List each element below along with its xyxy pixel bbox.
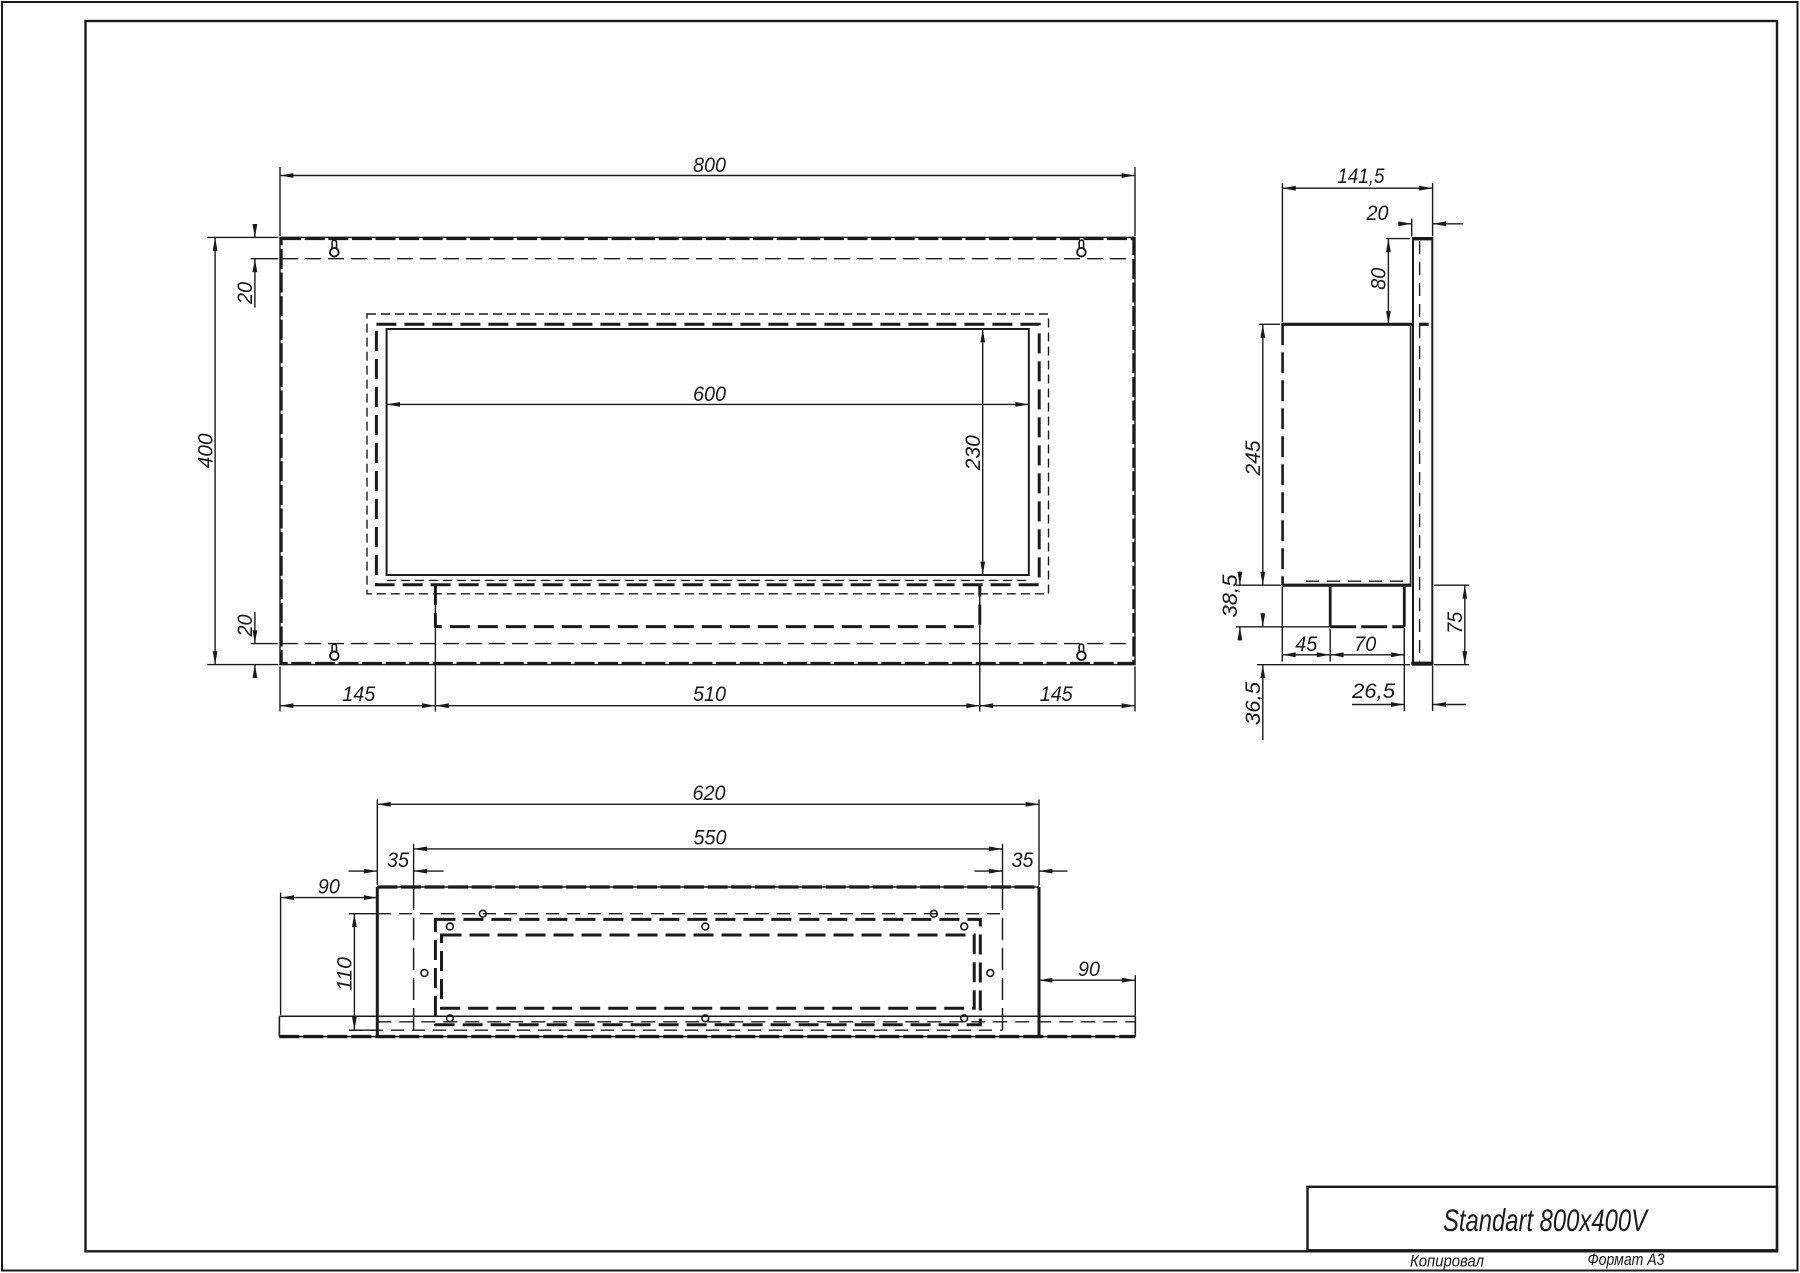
svg-text:110: 110	[333, 957, 357, 991]
svg-text:75: 75	[1443, 611, 1467, 634]
svg-text:510: 510	[693, 682, 726, 706]
svg-text:145: 145	[342, 682, 376, 706]
svg-text:70: 70	[1354, 632, 1376, 656]
svg-text:141,5: 141,5	[1337, 164, 1385, 188]
svg-text:550: 550	[694, 826, 727, 850]
svg-text:38,5: 38,5	[1218, 573, 1242, 617]
svg-text:35: 35	[387, 848, 410, 872]
svg-text:Копировал: Копировал	[1410, 1251, 1484, 1270]
svg-text:20: 20	[233, 614, 257, 637]
svg-text:26,5: 26,5	[1351, 679, 1396, 703]
svg-text:400: 400	[193, 433, 217, 468]
svg-text:20: 20	[233, 282, 257, 305]
svg-text:620: 620	[693, 781, 726, 805]
svg-text:800: 800	[693, 153, 726, 177]
svg-text:35: 35	[1012, 848, 1035, 872]
svg-text:145: 145	[1040, 682, 1074, 706]
svg-text:230: 230	[961, 435, 985, 471]
svg-text:90: 90	[318, 875, 340, 899]
svg-text:80: 80	[1367, 268, 1391, 290]
svg-text:Формат А3: Формат А3	[1588, 1250, 1665, 1269]
svg-text:90: 90	[1078, 957, 1100, 981]
svg-text:245: 245	[1241, 439, 1265, 476]
svg-text:36,5: 36,5	[1241, 681, 1265, 725]
svg-text:20: 20	[1366, 201, 1389, 225]
svg-text:600: 600	[693, 382, 726, 406]
svg-text:Standart 800x400V: Standart 800x400V	[1443, 1202, 1649, 1238]
svg-text:45: 45	[1295, 632, 1318, 656]
